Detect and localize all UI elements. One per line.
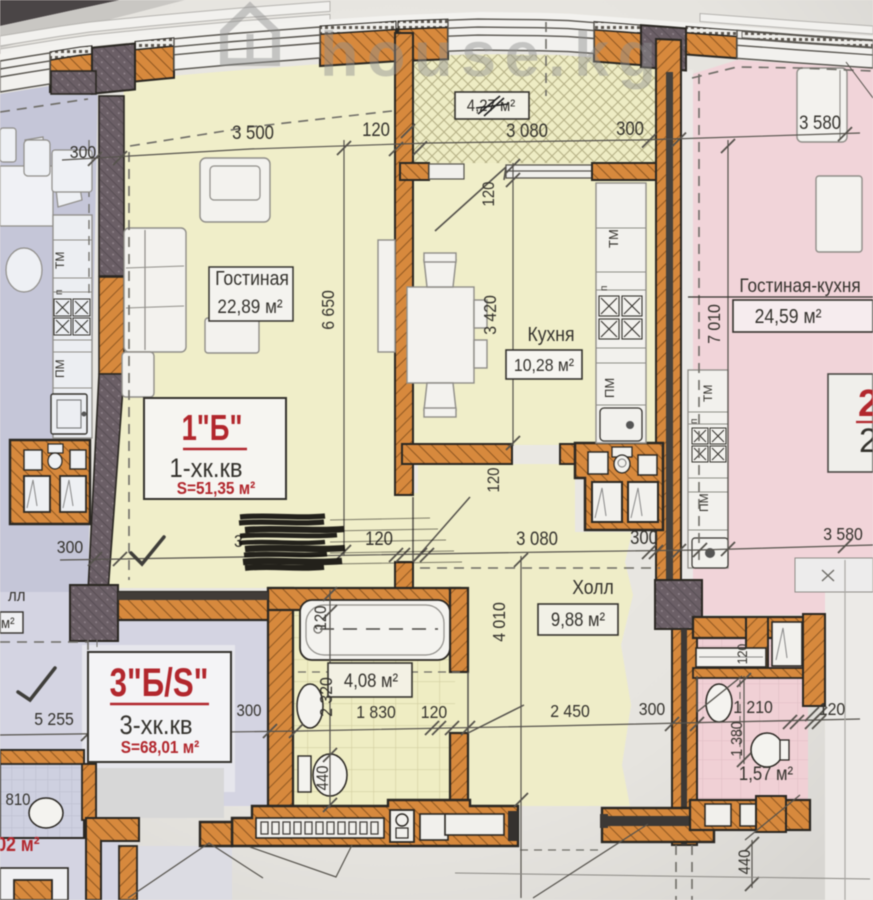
svg-text:120: 120 — [819, 699, 845, 719]
svg-text:24,59 м²: 24,59 м² — [755, 305, 822, 327]
svg-text:2 450: 2 450 — [550, 701, 590, 721]
svg-text:ПМ: ПМ — [53, 359, 67, 378]
svg-text:3-хк.кв: 3-хк.кв — [119, 711, 192, 741]
svg-text:Кухня: Кухня — [527, 323, 574, 345]
svg-text:Гостиная-кухня: Гостиная-кухня — [739, 274, 860, 296]
svg-text:440: 440 — [314, 765, 332, 790]
svg-text:3 500: 3 500 — [232, 122, 274, 143]
svg-text:22,89 м²: 22,89 м² — [217, 295, 282, 317]
svg-text:120: 120 — [365, 528, 393, 549]
svg-text:300: 300 — [616, 118, 644, 139]
svg-text:ТМ: ТМ — [53, 252, 67, 269]
svg-text:3 580: 3 580 — [799, 112, 841, 133]
svg-text:120: 120 — [734, 644, 750, 665]
svg-text:1 830: 1 830 — [356, 702, 396, 722]
svg-text:300: 300 — [70, 142, 96, 162]
svg-text:300: 300 — [630, 527, 658, 548]
svg-text:Холл: Холл — [572, 576, 613, 598]
svg-text:4 010: 4 010 — [489, 602, 509, 642]
svg-text:ТМ: ТМ — [606, 229, 621, 248]
svg-text:120: 120 — [480, 181, 498, 206]
svg-text:3 580: 3 580 — [823, 524, 863, 544]
svg-text:S=68,01 м²: S=68,01 м² — [121, 738, 200, 757]
svg-text:5 255: 5 255 — [34, 709, 74, 729]
svg-text:810: 810 — [6, 791, 31, 809]
svg-text:3 080: 3 080 — [506, 120, 548, 141]
svg-text:1 210: 1 210 — [733, 697, 773, 717]
svg-text:120: 120 — [362, 119, 390, 140]
svg-text:300: 300 — [639, 699, 665, 719]
svg-text:2 320: 2 320 — [316, 677, 336, 717]
svg-text:ТМ: ТМ — [701, 385, 715, 402]
svg-text:9,88 м²: 9,88 м² — [551, 609, 605, 630]
svg-text:7 010: 7 010 — [704, 304, 724, 344]
svg-text:3 080: 3 080 — [516, 528, 558, 549]
svg-text:Гостиная: Гостиная — [215, 267, 289, 289]
svg-text:120: 120 — [312, 605, 330, 630]
svg-text:300: 300 — [237, 702, 262, 720]
svg-text:440: 440 — [736, 849, 754, 874]
svg-text:п: п — [599, 286, 610, 291]
svg-text:6 650: 6 650 — [318, 290, 338, 330]
svg-text:1 380: 1 380 — [728, 721, 746, 756]
svg-text:S=51,35 м²: S=51,35 м² — [177, 479, 256, 498]
svg-text:1,57 м²: 1,57 м² — [739, 763, 793, 784]
svg-text:1"Б": 1"Б" — [182, 407, 243, 448]
svg-text:300: 300 — [57, 537, 83, 557]
svg-text:п: п — [54, 290, 65, 295]
svg-text:2: 2 — [859, 422, 873, 460]
svg-text:2: 2 — [858, 383, 873, 425]
svg-text:house.kg: house.kg — [320, 20, 665, 90]
svg-text:лл: лл — [8, 587, 25, 605]
svg-text:ПМ: ПМ — [602, 378, 617, 398]
svg-text:120: 120 — [485, 467, 503, 492]
svg-text:3 420: 3 420 — [480, 295, 500, 335]
svg-text:10,28 м²: 10,28 м² — [514, 355, 574, 375]
svg-text:3"Б/S": 3"Б/S" — [110, 660, 209, 705]
svg-text:02 м²: 02 м² — [0, 833, 40, 855]
svg-text:м²: м² — [1, 614, 15, 631]
svg-text:4,08 м²: 4,08 м² — [344, 670, 398, 691]
svg-text:120: 120 — [421, 702, 447, 722]
